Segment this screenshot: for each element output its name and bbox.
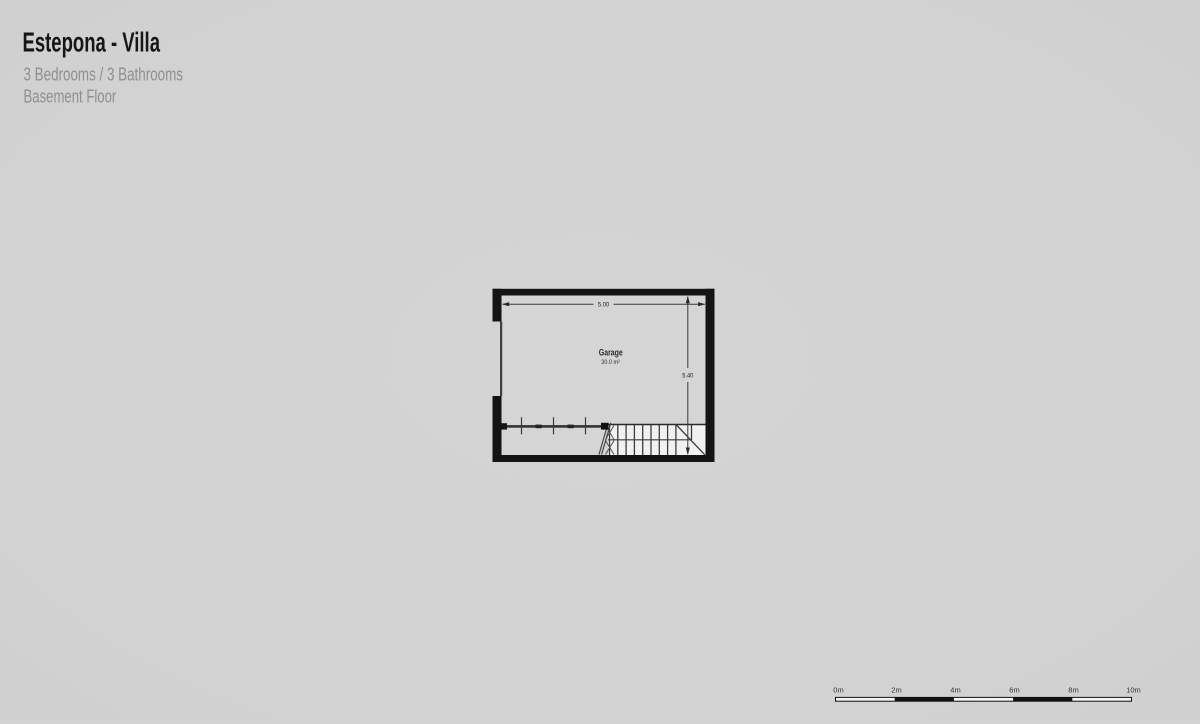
svg-text:Estepona - Villa: Estepona - Villa [23, 26, 161, 57]
svg-text:Basement Floor: Basement Floor [24, 85, 117, 106]
svg-text:0m: 0m [833, 686, 843, 695]
svg-text:Garage: Garage [599, 348, 623, 358]
svg-text:8m: 8m [1068, 686, 1078, 695]
svg-text:4m: 4m [950, 686, 960, 695]
svg-text:30.0 m²: 30.0 m² [601, 359, 620, 366]
svg-text:5.40: 5.40 [682, 373, 693, 380]
svg-text:5.00: 5.00 [598, 302, 609, 309]
svg-text:10m: 10m [1126, 686, 1141, 695]
svg-text:6m: 6m [1009, 686, 1019, 695]
svg-text:3 Bedrooms / 3 Bathrooms: 3 Bedrooms / 3 Bathrooms [24, 63, 184, 84]
svg-text:2m: 2m [891, 686, 901, 695]
